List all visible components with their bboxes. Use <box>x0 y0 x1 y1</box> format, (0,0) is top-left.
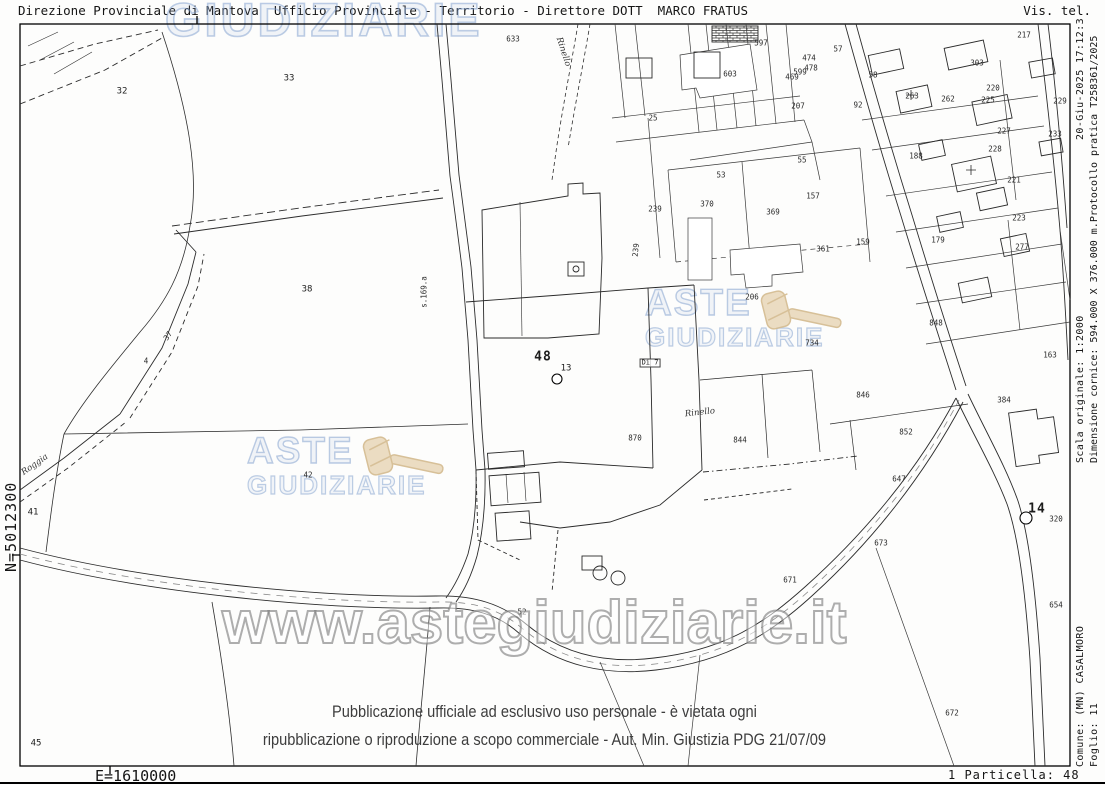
disclaimer-line1: Pubblicazione ufficiale ad esclusivo uso… <box>69 702 1019 722</box>
fiducial-points <box>552 374 1032 524</box>
watermark-url: www.astegiudiziarie.it <box>222 588 847 657</box>
disclaimer-line2: ripubblicazione o riproduzione a scopo c… <box>69 730 1019 750</box>
map-linework <box>0 0 1105 785</box>
map-frame <box>12 16 1070 774</box>
parcel-48-area <box>466 183 968 592</box>
cadastral-map-page: { "header": { "left": "Direzione Provinc… <box>0 0 1105 785</box>
